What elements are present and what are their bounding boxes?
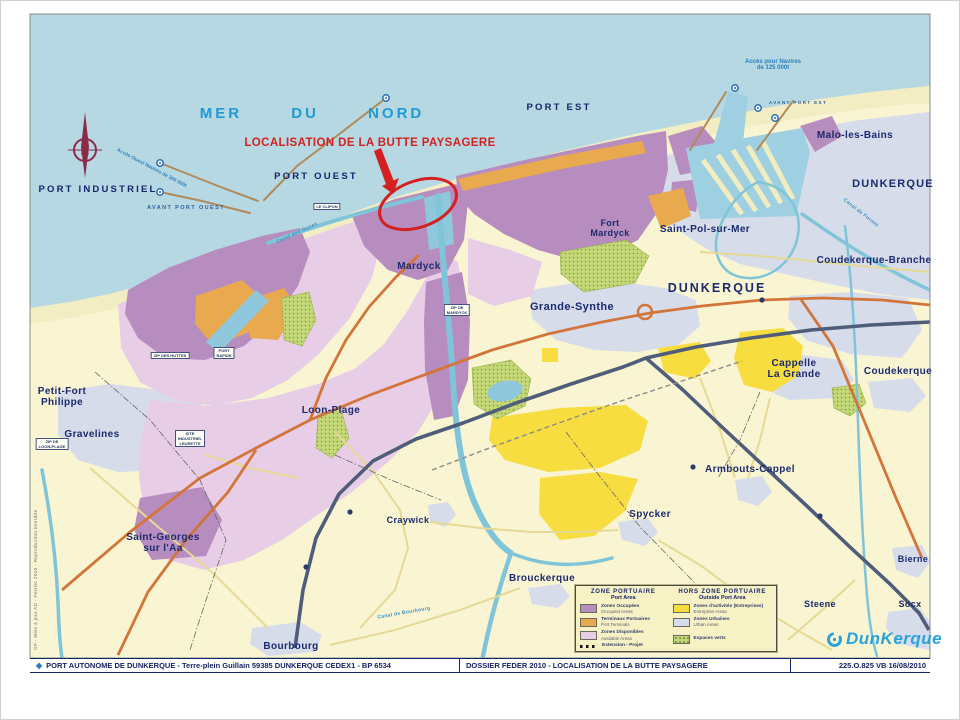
available-swatch [580, 631, 597, 640]
legend-item: Zones d'activités (Entreprises)Entrepris… [673, 604, 772, 615]
dunkerque-logo: DunKerque [826, 629, 942, 649]
port-est-label: PORT EST [526, 103, 591, 113]
avant-port-est-label: AVANT PORT EST [769, 101, 827, 106]
footer-dossier-section: DOSSIER FEDER 2010 - LOCALISATION DE LA … [459, 659, 790, 672]
avant-port-ouest-label: AVANT PORT OUEST [147, 206, 225, 212]
legend-label-fr: Zones Disponibles [601, 630, 644, 636]
town-petit-fort-philippe: Petit-Fort Philippe [38, 387, 86, 409]
port-autonome-icon: ◈ [36, 661, 42, 670]
legend-label-fr: Extension - Projet [602, 643, 643, 649]
urban-swatch [673, 618, 690, 627]
footer-reference-text: 225.O.825 VB 16/08/2010 [839, 661, 926, 670]
terminal-swatch [580, 618, 597, 627]
legend-item: Zones DisponiblesAvailable Areas [580, 630, 667, 641]
town-dunkerque: DUNKERQUE [668, 282, 767, 296]
town-dunkerque-ne: DUNKERQUE [852, 179, 934, 191]
activity-swatch [673, 604, 690, 613]
legend-port-column: ZONE PORTUAIRE Port Area Zones OccupéesO… [580, 589, 667, 648]
town-saint-georges-sur-laa: Saint-Georges sur l'Aa [126, 533, 200, 555]
access-east-label: Accès pour Navires de 125 000t [745, 59, 801, 72]
port-industriel-label: PORT INDUSTRIEL [38, 185, 157, 195]
footer-dossier-text: DOSSIER FEDER 2010 - LOCALISATION DE LA … [466, 661, 708, 670]
town-coudekerque: Coudekerque [864, 367, 932, 378]
town-malo-les-bains: Malo-les-Bains [817, 131, 893, 142]
legend-outside-subtitle: Outside Port Area [673, 595, 772, 601]
dunkerque-logo-icon [826, 631, 843, 648]
town-fort-mardyck: Fort Mardyck [590, 219, 629, 238]
map-page: N MER DU NORD LOCALISATION DE LA BUTTE P… [0, 0, 960, 720]
legend-port-subtitle: Port Area [580, 595, 667, 601]
legend-item: Espaces verts [673, 635, 772, 644]
town-armbouts-cappel: Armbouts-Cappel [705, 465, 795, 476]
site-industriel-leurette: SITE INDUSTRIEL LEURETTE [175, 430, 205, 447]
legend-item: Zones UrbainesUrban Areas [673, 617, 772, 628]
legend-label-en: Available Areas [601, 636, 644, 641]
town-loon-plage: Loon-Plage [302, 406, 360, 417]
dunkerque-logo-text: DunKerque [846, 629, 942, 649]
map-legend: ZONE PORTUAIRE Port Area Zones OccupéesO… [575, 585, 777, 652]
site-zip-loon-plage: ZIP DE LOON-PLAGE [36, 438, 69, 450]
occupied-swatch [580, 604, 597, 613]
legend-label-en: Entreprise Areas [694, 609, 764, 614]
footer-company-text: PORT AUTONOME DE DUNKERQUE - Terre-plein… [46, 661, 391, 670]
legend-label-fr: Espaces verts [694, 636, 726, 642]
footer-company-section: ◈ PORT AUTONOME DE DUNKERQUE - Terre-ple… [30, 661, 459, 670]
sea-name-label: MER DU NORD [200, 106, 425, 122]
legend-label-en: Urban Areas [694, 622, 730, 627]
site-zip-mardyck: ZIP DE MARDYCK [444, 304, 470, 316]
town-mardyck: Mardyck [397, 262, 440, 273]
town-gravelines: Gravelines [64, 430, 119, 441]
compass-north-letter: N [81, 144, 90, 158]
town-spycker: Spycker [629, 510, 671, 521]
legend-item: Terminaux PortuairesPort Terminals [580, 617, 667, 628]
site-le-clipon: LE CLIPON [313, 203, 340, 210]
town-socx: Socx [898, 600, 921, 610]
town-saint-pol-sur-mer: Saint-Pol-sur-Mer [660, 225, 750, 236]
legend-label-en: Occupied Areas [601, 609, 639, 614]
title-block: ◈ PORT AUTONOME DE DUNKERQUE - Terre-ple… [30, 658, 930, 673]
legend-outside-column: HORS ZONE PORTUAIRE Outside Port Area Zo… [673, 589, 772, 648]
town-cappelle-la-grande: Cappelle La Grande [767, 359, 820, 381]
site-port-rapide: PORT RAPIDE [213, 347, 234, 359]
town-steene: Steene [804, 600, 836, 610]
town-craywick: Craywick [387, 516, 430, 526]
site-zip-des-huttes: ZIP DES HUTTES [151, 352, 190, 359]
legend-label-en: Port Terminals [601, 622, 650, 627]
map-credits: GP - Mise à jour AD - Février 2010 - Rep… [33, 509, 38, 650]
port-ouest-label: PORT OUEST [274, 172, 358, 182]
town-brouckerque: Brouckerque [509, 574, 575, 585]
legend-item: Extension - Projet [580, 643, 667, 649]
footer-reference-section: 225.O.825 VB 16/08/2010 [790, 659, 930, 672]
town-bierne: Bierne [898, 555, 928, 565]
town-grande-synthe: Grande-Synthe [530, 302, 614, 314]
town-coudekerque-branche: Coudekerque-Branche [817, 256, 932, 267]
town-bourbourg: Bourbourg [263, 642, 318, 653]
green-swatch [673, 635, 690, 644]
butte-annotation-label: LOCALISATION DE LA BUTTE PAYSAGERE [244, 137, 495, 149]
extension-swatch [580, 645, 598, 648]
legend-item: Zones OccupéesOccupied Areas [580, 604, 667, 615]
